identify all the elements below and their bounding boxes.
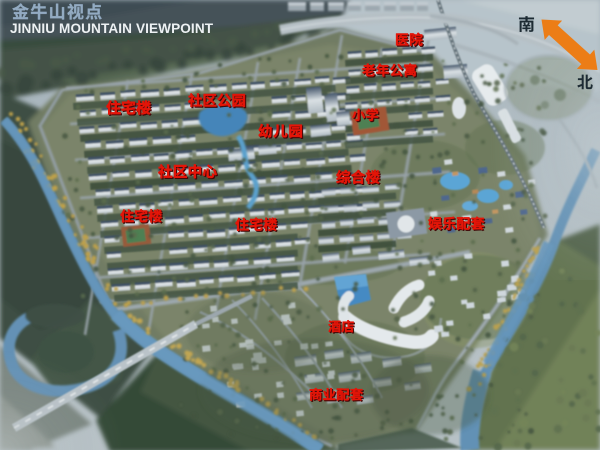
svg-text:JINNIU MOUNTAIN VIEWPOINT: JINNIU MOUNTAIN VIEWPOINT: [10, 21, 214, 36]
